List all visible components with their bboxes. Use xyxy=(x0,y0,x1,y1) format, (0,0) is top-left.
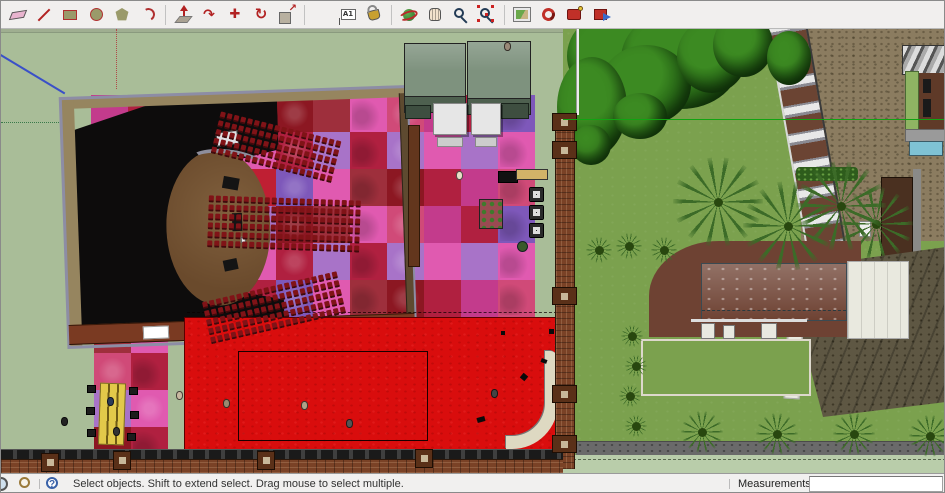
chair[interactable] xyxy=(271,207,276,214)
chair[interactable] xyxy=(320,226,325,233)
dark-chair[interactable] xyxy=(127,433,136,441)
chair[interactable] xyxy=(319,244,324,251)
chair[interactable] xyxy=(260,149,267,157)
chair[interactable] xyxy=(328,166,335,174)
chair[interactable] xyxy=(299,288,305,296)
person-figure[interactable] xyxy=(61,417,68,426)
chair[interactable] xyxy=(277,234,282,241)
lower-lawn[interactable] xyxy=(641,339,811,396)
chair[interactable] xyxy=(249,137,256,145)
chair[interactable] xyxy=(281,301,287,309)
chair[interactable] xyxy=(305,235,310,242)
courtyard-furniture[interactable] xyxy=(923,79,931,93)
chair[interactable] xyxy=(276,312,282,320)
chair[interactable] xyxy=(265,324,271,332)
credits-icon[interactable] xyxy=(19,477,30,488)
chair[interactable] xyxy=(293,198,298,205)
chair[interactable] xyxy=(215,214,220,221)
chair[interactable] xyxy=(208,222,213,229)
circle-icon[interactable] xyxy=(84,3,108,27)
chair[interactable] xyxy=(267,151,274,159)
chair[interactable] xyxy=(306,208,311,215)
palm-shrub[interactable] xyxy=(681,411,723,453)
text-icon[interactable]: A1 xyxy=(336,3,360,27)
courtyard-furniture[interactable] xyxy=(923,99,931,117)
chair[interactable] xyxy=(301,132,308,140)
chair[interactable] xyxy=(308,133,315,141)
chair[interactable] xyxy=(315,294,321,302)
chair[interactable] xyxy=(229,132,236,140)
chair[interactable] xyxy=(271,216,276,223)
chair[interactable] xyxy=(235,134,242,142)
buffet-table-wood[interactable] xyxy=(516,169,548,180)
chair[interactable] xyxy=(326,235,331,242)
chair[interactable] xyxy=(341,209,346,216)
chair[interactable] xyxy=(272,294,278,302)
chair[interactable] xyxy=(307,199,312,206)
chair[interactable] xyxy=(341,218,346,225)
white-table[interactable] xyxy=(471,103,501,135)
chair[interactable] xyxy=(256,233,261,240)
chair[interactable] xyxy=(267,305,273,313)
chair[interactable] xyxy=(228,232,233,239)
person-figure[interactable] xyxy=(456,171,463,180)
chair[interactable] xyxy=(326,244,331,251)
chair[interactable] xyxy=(257,289,263,297)
chair[interactable] xyxy=(298,243,303,250)
chair[interactable] xyxy=(218,307,224,315)
chair[interactable] xyxy=(243,215,248,222)
person-figure[interactable] xyxy=(223,399,230,408)
chair[interactable] xyxy=(312,313,318,321)
chair[interactable] xyxy=(247,146,254,154)
chair[interactable] xyxy=(240,311,246,319)
chair[interactable] xyxy=(209,195,214,202)
chair[interactable] xyxy=(335,200,340,207)
chair[interactable] xyxy=(251,129,258,137)
chair[interactable] xyxy=(264,224,269,231)
plunge-pool[interactable] xyxy=(909,141,943,156)
chair[interactable] xyxy=(319,311,325,319)
chair[interactable] xyxy=(299,140,306,148)
chair[interactable] xyxy=(333,245,338,252)
chair[interactable] xyxy=(292,139,299,147)
planter-strip[interactable] xyxy=(408,125,420,267)
chair[interactable] xyxy=(231,151,238,159)
chair[interactable] xyxy=(235,321,241,329)
chair[interactable] xyxy=(213,138,220,146)
chair[interactable] xyxy=(236,293,242,301)
dark-chair[interactable] xyxy=(130,411,139,419)
chair[interactable] xyxy=(258,130,265,138)
chair[interactable] xyxy=(224,305,230,313)
chair[interactable] xyxy=(313,285,319,293)
chair[interactable] xyxy=(319,146,326,154)
chair[interactable] xyxy=(330,158,337,166)
chair[interactable] xyxy=(326,147,333,155)
chair[interactable] xyxy=(263,233,268,240)
add-location-icon[interactable] xyxy=(510,3,534,27)
chair[interactable] xyxy=(355,218,360,225)
person-figure[interactable] xyxy=(113,427,120,436)
chair[interactable] xyxy=(251,197,256,204)
chair[interactable] xyxy=(264,206,269,213)
chair[interactable] xyxy=(271,225,276,232)
chair[interactable] xyxy=(285,216,290,223)
shrub[interactable] xyxy=(616,233,642,259)
chair[interactable] xyxy=(244,328,250,336)
chair[interactable] xyxy=(238,153,245,161)
chair[interactable] xyxy=(252,299,258,307)
chair[interactable] xyxy=(220,139,227,147)
chair[interactable] xyxy=(265,296,271,304)
chair[interactable] xyxy=(320,283,326,291)
chair[interactable] xyxy=(215,129,222,137)
share-model-icon[interactable] xyxy=(588,3,612,27)
chair[interactable] xyxy=(290,147,297,155)
chair[interactable] xyxy=(285,319,291,327)
chair[interactable] xyxy=(341,227,346,234)
chair[interactable] xyxy=(312,244,317,251)
chair[interactable] xyxy=(303,151,310,159)
chair[interactable] xyxy=(297,279,303,287)
chair[interactable] xyxy=(229,205,234,212)
chair[interactable] xyxy=(265,197,270,204)
chair[interactable] xyxy=(254,148,261,156)
chair[interactable] xyxy=(306,217,311,224)
palm-shrub[interactable] xyxy=(909,415,945,457)
tree-canopy[interactable] xyxy=(767,31,811,85)
scale-icon[interactable]: ↗ xyxy=(275,3,299,27)
chair[interactable] xyxy=(250,206,255,213)
chair[interactable] xyxy=(333,236,338,243)
chair[interactable] xyxy=(258,158,265,166)
chair[interactable] xyxy=(328,138,335,146)
chair[interactable] xyxy=(313,217,318,224)
chair[interactable] xyxy=(313,208,318,215)
chair[interactable] xyxy=(247,118,254,126)
push-pull-icon[interactable] xyxy=(171,3,195,27)
eraser-icon[interactable] xyxy=(6,3,30,27)
chair[interactable] xyxy=(355,209,360,216)
chair[interactable] xyxy=(278,225,283,232)
chair[interactable] xyxy=(204,310,210,318)
warehouse-icon[interactable] xyxy=(562,3,586,27)
chair[interactable] xyxy=(274,153,281,161)
chair[interactable] xyxy=(347,245,352,252)
carpet-tile[interactable] xyxy=(131,390,168,427)
chair[interactable] xyxy=(249,233,254,240)
chair[interactable] xyxy=(277,243,282,250)
building-door[interactable] xyxy=(143,325,169,339)
chair[interactable] xyxy=(220,316,226,324)
chair[interactable] xyxy=(272,134,279,142)
chair[interactable] xyxy=(293,289,299,297)
chair[interactable] xyxy=(281,127,288,135)
chair[interactable] xyxy=(260,122,267,130)
chair[interactable] xyxy=(298,234,303,241)
chair[interactable] xyxy=(214,232,219,239)
3d-viewport[interactable] xyxy=(1,29,945,473)
chair[interactable] xyxy=(263,287,269,295)
chair[interactable] xyxy=(334,218,339,225)
chair[interactable] xyxy=(243,206,248,213)
rotate-icon[interactable]: ↻ xyxy=(249,3,273,27)
chair[interactable] xyxy=(306,226,311,233)
chair[interactable] xyxy=(327,226,332,233)
chair[interactable] xyxy=(286,291,292,299)
service-table[interactable] xyxy=(501,103,529,119)
chair[interactable] xyxy=(244,127,251,135)
chair[interactable] xyxy=(331,299,337,307)
chair[interactable] xyxy=(256,316,262,324)
white-table[interactable] xyxy=(433,103,467,135)
tape-measure-icon[interactable] xyxy=(310,3,334,27)
chair[interactable] xyxy=(325,273,331,281)
chair[interactable] xyxy=(342,200,347,207)
carpet-tile[interactable] xyxy=(424,206,461,243)
chair[interactable] xyxy=(326,175,333,183)
shrub[interactable] xyxy=(621,325,643,347)
chair[interactable] xyxy=(233,115,240,123)
chair[interactable] xyxy=(217,335,223,343)
chair[interactable] xyxy=(281,155,288,163)
chair[interactable] xyxy=(242,320,248,328)
chair[interactable] xyxy=(319,173,326,181)
chair[interactable] xyxy=(219,111,226,119)
photo-textures-icon[interactable] xyxy=(536,3,560,27)
chair[interactable] xyxy=(304,278,310,286)
chair[interactable] xyxy=(311,276,317,284)
chair[interactable] xyxy=(221,241,226,248)
chair[interactable] xyxy=(215,205,220,212)
chair[interactable] xyxy=(314,199,319,206)
zoom-extents-icon[interactable] xyxy=(475,3,499,27)
chair[interactable] xyxy=(335,140,342,148)
chair[interactable] xyxy=(320,217,325,224)
chair[interactable] xyxy=(315,163,322,171)
chair[interactable] xyxy=(233,143,240,151)
person-figure[interactable] xyxy=(176,391,183,400)
chair[interactable] xyxy=(208,204,213,211)
chair[interactable] xyxy=(310,304,316,312)
chair[interactable] xyxy=(326,309,332,317)
chair[interactable] xyxy=(276,144,283,152)
chair[interactable] xyxy=(322,292,328,300)
chair[interactable] xyxy=(202,301,208,309)
chair[interactable] xyxy=(284,282,290,290)
chair[interactable] xyxy=(210,336,216,344)
chair[interactable] xyxy=(288,156,295,164)
chair[interactable] xyxy=(231,304,237,312)
round-table[interactable] xyxy=(529,187,544,202)
carpet-tile[interactable] xyxy=(424,243,461,280)
chair[interactable] xyxy=(229,223,234,230)
chair[interactable] xyxy=(207,231,212,238)
chair[interactable] xyxy=(222,131,229,139)
chair[interactable] xyxy=(297,307,303,315)
chair[interactable] xyxy=(347,236,352,243)
chair[interactable] xyxy=(340,245,345,252)
chair[interactable] xyxy=(242,136,249,144)
shrub[interactable] xyxy=(651,237,677,263)
shrub[interactable] xyxy=(625,355,647,377)
chair[interactable] xyxy=(251,156,258,164)
chair[interactable] xyxy=(290,309,296,317)
chair[interactable] xyxy=(283,146,290,154)
chair[interactable] xyxy=(228,241,233,248)
chair[interactable] xyxy=(231,332,237,340)
chair[interactable] xyxy=(299,216,304,223)
chair[interactable] xyxy=(222,324,228,332)
chair[interactable] xyxy=(221,232,226,239)
chair[interactable] xyxy=(305,244,310,251)
chair[interactable] xyxy=(216,298,222,306)
chair[interactable] xyxy=(245,155,252,163)
chair[interactable] xyxy=(236,214,241,221)
move-icon[interactable]: ✚ xyxy=(223,3,247,27)
chair[interactable] xyxy=(292,167,299,175)
chair[interactable] xyxy=(217,120,224,128)
chair[interactable] xyxy=(318,274,324,282)
chair[interactable] xyxy=(206,319,212,327)
chair[interactable] xyxy=(250,224,255,231)
chair[interactable] xyxy=(259,297,265,305)
help-icon[interactable]: ? xyxy=(46,477,58,489)
chair[interactable] xyxy=(334,280,340,288)
chair[interactable] xyxy=(263,141,270,149)
chair[interactable] xyxy=(272,162,279,170)
rectangle-icon[interactable] xyxy=(58,3,82,27)
chair[interactable] xyxy=(208,327,214,335)
chair[interactable] xyxy=(334,209,339,216)
chair[interactable] xyxy=(274,125,281,133)
chair[interactable] xyxy=(348,209,353,216)
chair[interactable] xyxy=(294,158,301,166)
chair[interactable] xyxy=(301,297,307,305)
chair[interactable] xyxy=(287,128,294,136)
chair[interactable] xyxy=(253,120,260,128)
chair[interactable] xyxy=(242,233,247,240)
chair[interactable] xyxy=(324,301,330,309)
chair[interactable] xyxy=(279,163,286,171)
buffet-table-black[interactable] xyxy=(498,171,518,183)
chair[interactable] xyxy=(211,146,218,154)
chair[interactable] xyxy=(274,303,280,311)
chair[interactable] xyxy=(226,314,232,322)
chair[interactable] xyxy=(321,199,326,206)
chair[interactable] xyxy=(322,165,329,173)
chair[interactable] xyxy=(306,170,313,178)
carpet-tile[interactable] xyxy=(498,132,535,169)
shrub[interactable] xyxy=(625,415,647,437)
zoom-icon[interactable] xyxy=(449,3,473,27)
paint-bucket-icon[interactable] xyxy=(362,3,386,27)
chair[interactable] xyxy=(278,216,283,223)
chair[interactable] xyxy=(354,245,359,252)
chair[interactable] xyxy=(321,137,328,145)
chair[interactable] xyxy=(256,242,261,249)
chair[interactable] xyxy=(306,286,312,294)
yellow-banquet-table[interactable] xyxy=(98,383,126,446)
chair[interactable] xyxy=(243,224,248,231)
chair-rows-middle[interactable] xyxy=(206,194,364,253)
chair[interactable] xyxy=(300,199,305,206)
chair[interactable] xyxy=(270,285,276,293)
chair[interactable] xyxy=(217,148,224,156)
chair[interactable] xyxy=(247,309,253,317)
chair[interactable] xyxy=(277,284,283,292)
measurements-input[interactable] xyxy=(809,476,943,492)
chair[interactable] xyxy=(237,330,243,338)
chair[interactable] xyxy=(236,205,241,212)
chair[interactable] xyxy=(278,321,284,329)
chair[interactable] xyxy=(308,161,315,169)
chair[interactable] xyxy=(308,295,314,303)
tree-canopy[interactable] xyxy=(613,93,667,139)
swimming-pool[interactable] xyxy=(701,263,847,321)
chair[interactable] xyxy=(229,295,235,303)
line-icon[interactable] xyxy=(32,3,56,27)
polygon-icon[interactable] xyxy=(110,3,134,27)
brick-wall-bottom[interactable] xyxy=(1,459,563,473)
chair[interactable] xyxy=(230,196,235,203)
service-table[interactable] xyxy=(405,105,431,119)
chair[interactable] xyxy=(269,313,275,321)
chair[interactable] xyxy=(256,139,263,147)
carpet-tile[interactable] xyxy=(131,353,168,390)
chair[interactable] xyxy=(238,125,245,133)
chair[interactable] xyxy=(257,206,262,213)
chair[interactable] xyxy=(292,207,297,214)
chair[interactable] xyxy=(214,241,219,248)
chair[interactable] xyxy=(265,132,272,140)
chair[interactable] xyxy=(292,225,297,232)
pan-icon[interactable] xyxy=(423,3,447,27)
person-figure[interactable] xyxy=(301,401,308,410)
palm-tree[interactable] xyxy=(796,161,886,251)
chair[interactable] xyxy=(263,242,268,249)
shrub[interactable] xyxy=(586,237,612,263)
chair[interactable] xyxy=(213,317,219,325)
chair[interactable] xyxy=(306,314,312,322)
chair[interactable] xyxy=(211,308,217,316)
chair[interactable] xyxy=(243,292,249,300)
chair[interactable] xyxy=(349,200,354,207)
chair[interactable] xyxy=(250,215,255,222)
chair[interactable] xyxy=(285,165,292,173)
chair[interactable] xyxy=(265,160,272,168)
chair[interactable] xyxy=(229,214,234,221)
chair[interactable] xyxy=(279,198,284,205)
chair[interactable] xyxy=(222,223,227,230)
chair[interactable] xyxy=(305,142,312,150)
chair[interactable] xyxy=(327,282,333,290)
chair[interactable] xyxy=(285,207,290,214)
chair[interactable] xyxy=(312,144,319,152)
chair[interactable] xyxy=(295,298,301,306)
round-table[interactable] xyxy=(529,223,544,238)
palm-shrub[interactable] xyxy=(756,413,798,455)
chair[interactable] xyxy=(288,300,294,308)
carpet-tile[interactable] xyxy=(461,243,498,280)
chair[interactable] xyxy=(257,224,262,231)
follow-me-icon[interactable]: ↷ xyxy=(197,3,221,27)
chair[interactable] xyxy=(313,172,320,180)
chair[interactable] xyxy=(254,308,260,316)
chair[interactable] xyxy=(209,300,215,308)
chair[interactable] xyxy=(299,168,306,176)
